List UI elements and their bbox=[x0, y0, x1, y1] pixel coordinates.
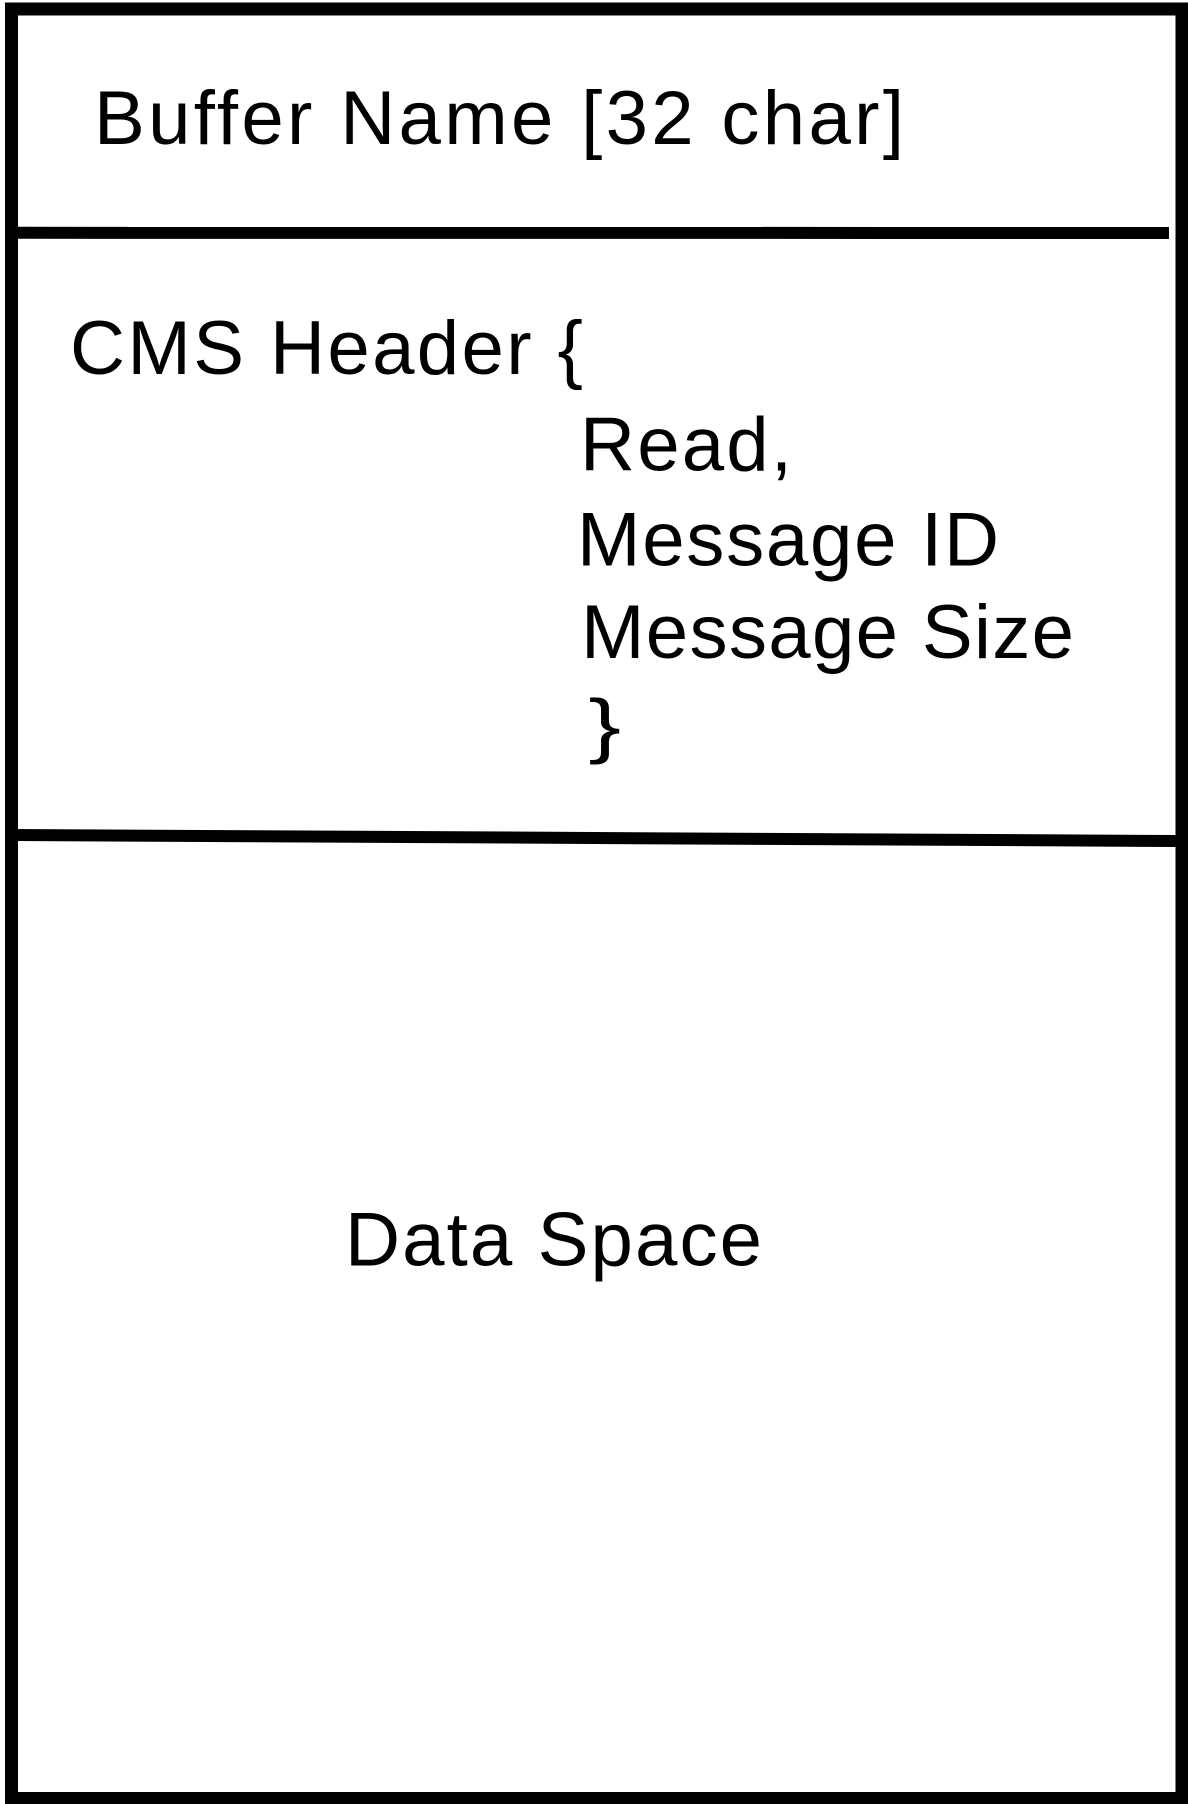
svg-text:}: } bbox=[589, 687, 622, 766]
svg-text:Buffer Name [32 char]: Buffer Name [32 char] bbox=[94, 76, 904, 161]
svg-text:Read,: Read, bbox=[580, 403, 792, 488]
svg-text:CMS Header {: CMS Header { bbox=[70, 306, 583, 391]
svg-text:Message Size: Message Size bbox=[581, 590, 1074, 675]
svg-text:Data Space: Data Space bbox=[345, 1198, 762, 1283]
svg-text:Message ID: Message ID bbox=[577, 498, 999, 583]
